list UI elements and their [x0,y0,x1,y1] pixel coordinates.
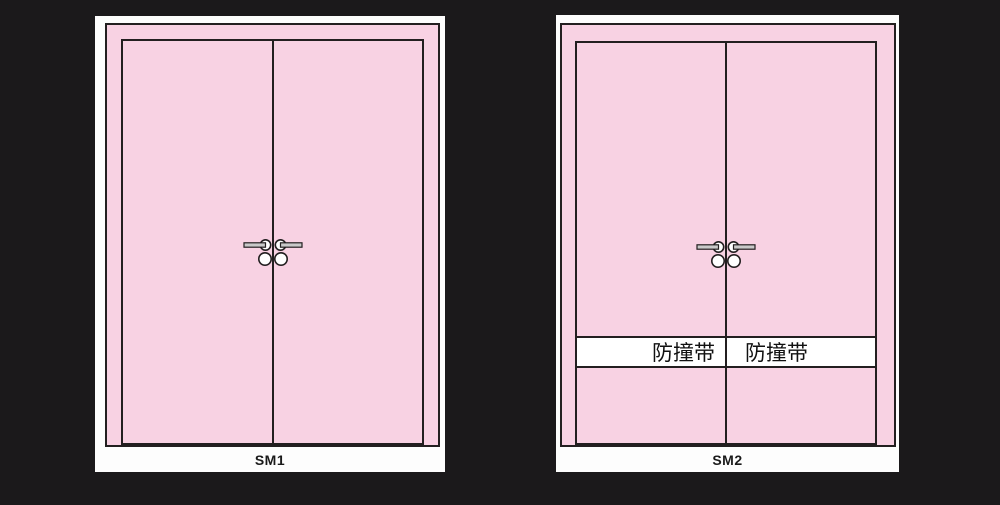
bumper-strip-label: 防撞带 [745,337,808,367]
door-leaves [121,39,424,445]
door-handle-icon [694,238,758,272]
door-frame: 防撞带 防撞带 [560,23,896,447]
door-label: SM2 [556,447,899,472]
drawing-canvas: SM1 防撞带 防撞带 [0,0,1000,505]
bumper-strip-label: 防撞带 [652,337,715,367]
door-diagram-sm1: SM1 [95,16,445,472]
bumper-strip-right: 防撞带 [727,336,875,368]
door-label: SM1 [95,447,445,472]
door-leaves: 防撞带 防撞带 [575,41,877,445]
door-frame [105,23,440,447]
door-diagram-sm2: 防撞带 防撞带 SM2 [556,15,899,472]
door-handle-icon [241,236,305,270]
bumper-strip-left: 防撞带 [577,336,725,368]
